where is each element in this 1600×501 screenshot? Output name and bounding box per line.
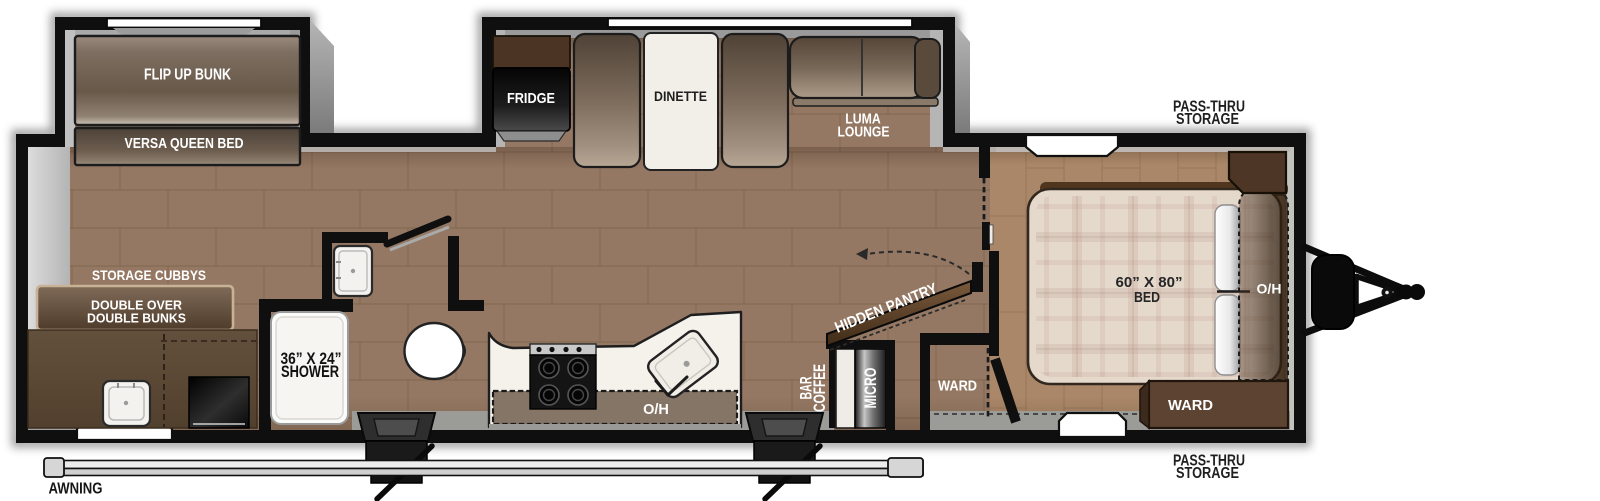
- svg-text:AWNING: AWNING: [49, 481, 103, 498]
- svg-text:O/H: O/H: [643, 402, 669, 418]
- svg-text:DINETTE: DINETTE: [654, 89, 707, 104]
- svg-text:O/H: O/H: [1257, 281, 1282, 297]
- svg-text:FLIP UP BUNK: FLIP UP BUNK: [144, 67, 232, 84]
- svg-text:LOUNGE: LOUNGE: [838, 125, 890, 141]
- svg-text:WARD: WARD: [938, 378, 977, 395]
- svg-text:VERSA QUEEN BED: VERSA QUEEN BED: [125, 135, 244, 152]
- svg-text:BED: BED: [1134, 290, 1160, 306]
- svg-text:STORAGE: STORAGE: [1176, 465, 1239, 482]
- svg-text:STORAGE: STORAGE: [1176, 111, 1239, 128]
- svg-text:MICRO: MICRO: [861, 368, 880, 409]
- svg-text:FRIDGE: FRIDGE: [507, 90, 555, 107]
- svg-text:60” X 80”: 60” X 80”: [1116, 275, 1183, 291]
- svg-text:DOUBLE BUNKS: DOUBLE BUNKS: [87, 311, 186, 326]
- svg-text:SHOWER: SHOWER: [281, 363, 339, 381]
- svg-text:WARD: WARD: [1168, 397, 1213, 414]
- svg-text:BAR: BAR: [797, 377, 816, 400]
- svg-text:STORAGE CUBBYS: STORAGE CUBBYS: [92, 267, 206, 283]
